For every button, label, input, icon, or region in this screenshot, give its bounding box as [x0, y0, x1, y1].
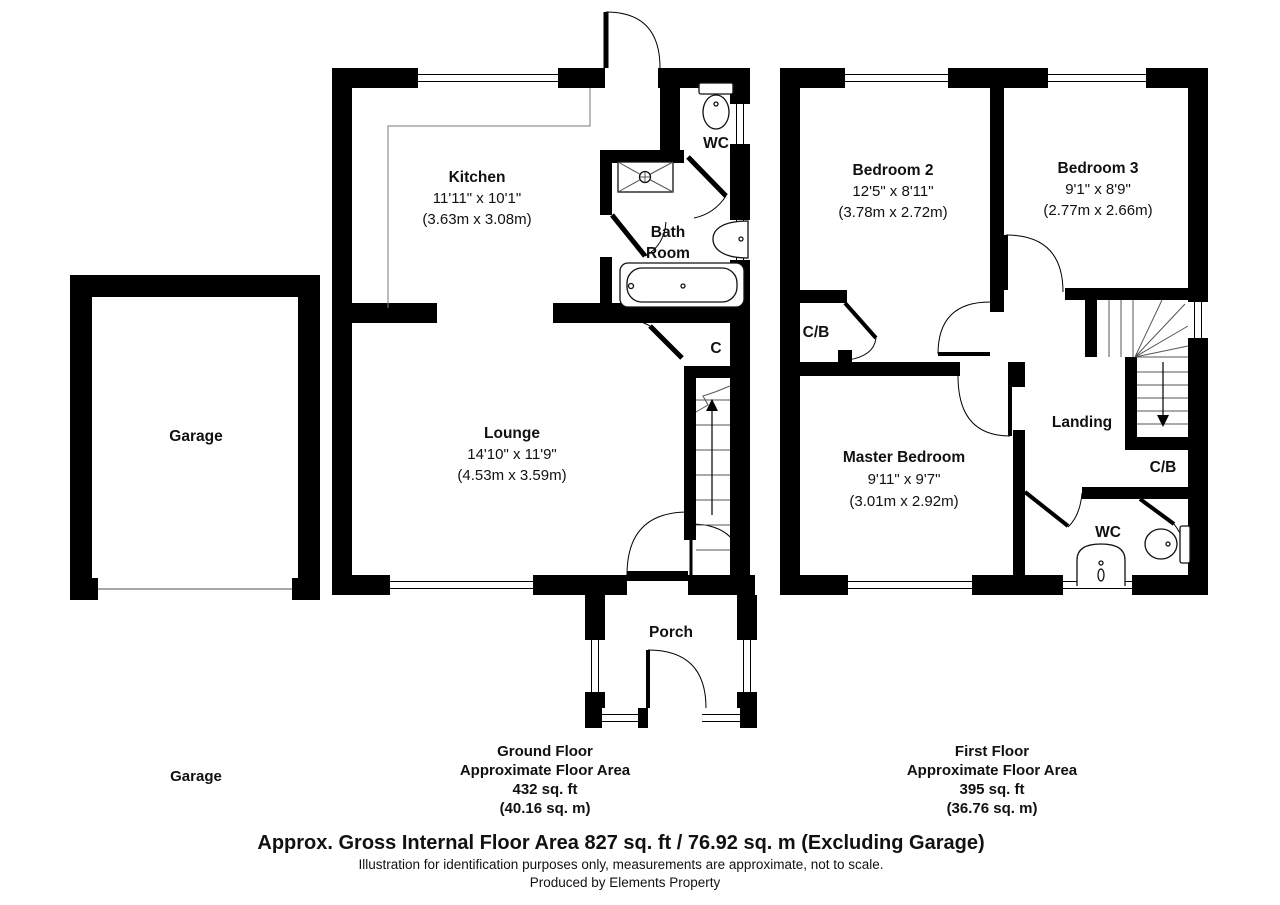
bedroom2-door	[938, 302, 990, 354]
garage-structure: Garage	[70, 275, 320, 600]
ground-floor-walls	[332, 68, 757, 728]
down-arrow-icon	[1157, 415, 1169, 427]
first-floor-windows	[845, 68, 1208, 595]
kitchen-size-imperial: 11'11" x 10'1"	[433, 190, 521, 207]
window	[737, 640, 757, 692]
lounge-label: Lounge	[484, 425, 540, 442]
master-bedroom-door	[958, 376, 1010, 436]
hall-porch-door	[627, 512, 688, 581]
captions: Garage Ground Floor Approximate Floor Ar…	[170, 743, 1078, 890]
bathroom-label-line1: Bath	[651, 224, 685, 241]
ground-floor-caption-aream: (40.16 sq. m)	[500, 800, 591, 817]
wc-door	[1025, 492, 1082, 527]
ground-floor-windows	[390, 68, 757, 728]
entrance-door	[606, 12, 660, 68]
garage-room-label: Garage	[169, 428, 223, 445]
front-door	[648, 650, 706, 708]
bedroom3-door	[1006, 235, 1063, 292]
ground-floor-caption-title: Ground Floor	[497, 743, 593, 760]
window	[602, 708, 638, 728]
master-size-imperial: 9'11" x 9'7"	[868, 471, 941, 488]
first-floor-caption-subtitle: Approximate Floor Area	[907, 762, 1078, 779]
lounge-size-imperial: 14'10" x 11'9"	[467, 446, 557, 463]
cupboard-label: C	[710, 340, 721, 357]
bathroom-label-line2: Room	[646, 245, 690, 262]
wc-label: WC	[703, 135, 729, 152]
bedroom3-size-imperial: 9'1" x 8'9"	[1065, 181, 1131, 198]
bedroom2-label: Bedroom 2	[853, 162, 934, 179]
garage-caption: Garage	[170, 768, 222, 785]
producer-credit: Produced by Elements Property	[530, 875, 721, 890]
window	[1188, 302, 1208, 338]
wc-door	[688, 157, 726, 218]
first-floor-caption-aream: (36.76 sq. m)	[947, 800, 1038, 817]
basin-icon	[1077, 544, 1125, 586]
kitchen-label: Kitchen	[449, 169, 506, 186]
first-floor-caption-title: First Floor	[955, 743, 1029, 760]
floorplan-canvas: Garage	[0, 0, 1280, 905]
bedroom2-size-metric: (3.78m x 2.72m)	[838, 204, 947, 221]
shower-icon	[618, 162, 673, 192]
bedroom3-label: Bedroom 3	[1058, 160, 1139, 177]
kitchen-size-metric: (3.63m x 3.08m)	[422, 211, 531, 228]
cupboard-left-label: C/B	[803, 324, 830, 341]
first-floor-caption-areaft: 395 sq. ft	[959, 781, 1024, 798]
window	[1048, 68, 1146, 88]
porch-label: Porch	[649, 624, 693, 641]
window	[585, 640, 605, 692]
ground-floor-labels: Kitchen 11'11" x 10'1" (3.63m x 3.08m) W…	[422, 135, 729, 641]
window	[390, 575, 533, 595]
floorplan-page: Garage	[0, 0, 1280, 905]
staircase-up	[696, 386, 730, 550]
ground-floor-caption-areaft: 432 sq. ft	[512, 781, 577, 798]
master-bedroom-label: Master Bedroom	[843, 449, 965, 466]
first-floor-walls	[780, 68, 1208, 595]
first-floor-labels: Bedroom 2 12'5" x 8'11" (3.78m x 2.72m) …	[803, 160, 1177, 541]
sink-icon	[713, 221, 748, 258]
gross-area-headline: Approx. Gross Internal Floor Area 827 sq…	[257, 832, 984, 854]
cupboard-door	[616, 319, 682, 358]
staircase-down	[1109, 300, 1188, 427]
bedroom2-size-imperial: 12'5" x 8'11"	[852, 183, 933, 200]
window	[845, 68, 948, 88]
bedroom3-size-metric: (2.77m x 2.66m)	[1043, 202, 1152, 219]
landing-label: Landing	[1052, 414, 1112, 431]
window	[418, 68, 558, 88]
bathtub-icon	[620, 263, 744, 307]
wc-label: WC	[1095, 524, 1121, 541]
disclaimer-text: Illustration for identification purposes…	[358, 857, 883, 872]
window	[730, 104, 750, 144]
cupboard-right-label: C/B	[1150, 459, 1177, 476]
ground-floor-caption-subtitle: Approximate Floor Area	[460, 762, 631, 779]
master-size-metric: (3.01m x 2.92m)	[849, 493, 958, 510]
window	[702, 708, 740, 728]
toilet-icon	[1145, 526, 1190, 563]
window	[848, 575, 972, 595]
toilet-icon	[699, 83, 733, 129]
lounge-size-metric: (4.53m x 3.59m)	[457, 467, 566, 484]
